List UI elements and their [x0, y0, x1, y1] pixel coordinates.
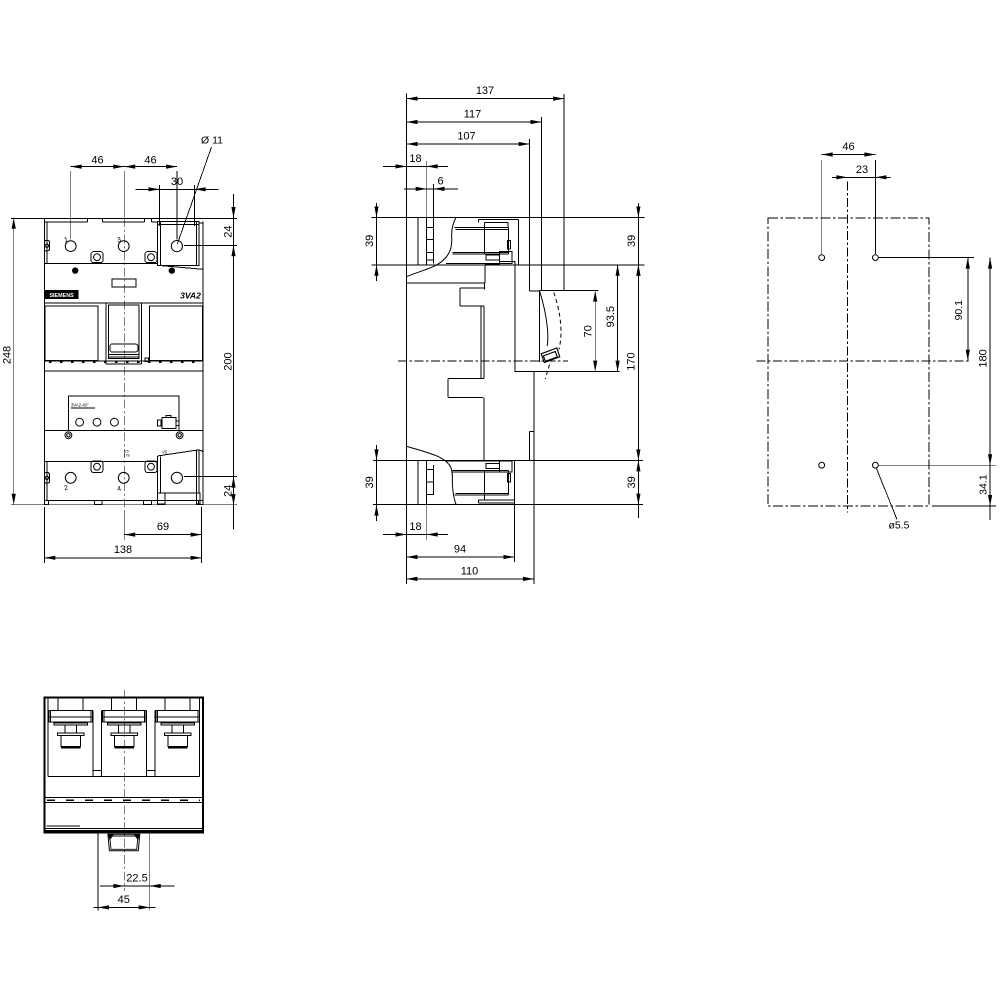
svg-text:24: 24 [223, 225, 235, 237]
svg-text:39: 39 [364, 235, 376, 247]
svg-text:138: 138 [114, 544, 132, 556]
svg-text:34.1: 34.1 [977, 474, 989, 495]
svg-text:45: 45 [118, 894, 130, 906]
svg-text:178: 178 [124, 454, 130, 458]
svg-text:23: 23 [856, 164, 868, 176]
svg-text:V5: V5 [162, 450, 168, 455]
svg-text:39: 39 [626, 476, 638, 488]
svg-text:94: 94 [454, 544, 466, 556]
svg-text:180: 180 [977, 349, 989, 367]
svg-text:107: 107 [457, 131, 475, 143]
svg-text:69: 69 [157, 521, 169, 533]
svg-text:117: 117 [464, 109, 482, 121]
svg-text:170: 170 [626, 352, 638, 370]
svg-text:22.5: 22.5 [126, 872, 147, 884]
svg-text:110: 110 [461, 565, 479, 577]
svg-text:30: 30 [171, 176, 183, 188]
svg-text:39: 39 [364, 476, 376, 488]
svg-text:18: 18 [409, 521, 421, 533]
svg-text:39: 39 [626, 235, 638, 247]
svg-text:24: 24 [223, 485, 235, 497]
svg-text:46: 46 [144, 154, 156, 166]
svg-text:Ø 11: Ø 11 [201, 135, 223, 147]
svg-text:6: 6 [437, 176, 443, 188]
svg-text:18: 18 [409, 153, 421, 165]
svg-text:200: 200 [223, 352, 235, 370]
svg-text:3VA2: 3VA2 [180, 290, 201, 300]
svg-text:90.1: 90.1 [953, 300, 965, 321]
svg-text:248: 248 [1, 346, 13, 364]
svg-text:46: 46 [842, 141, 854, 153]
svg-text:SIEMENS: SIEMENS [49, 293, 74, 299]
svg-text:137: 137 [476, 85, 494, 97]
svg-text:70: 70 [582, 325, 594, 337]
svg-text:93.5: 93.5 [605, 306, 617, 327]
svg-text:46: 46 [91, 154, 103, 166]
svg-text:3VA2-40°: 3VA2-40° [71, 403, 89, 408]
svg-text:ø5.5: ø5.5 [888, 520, 909, 532]
